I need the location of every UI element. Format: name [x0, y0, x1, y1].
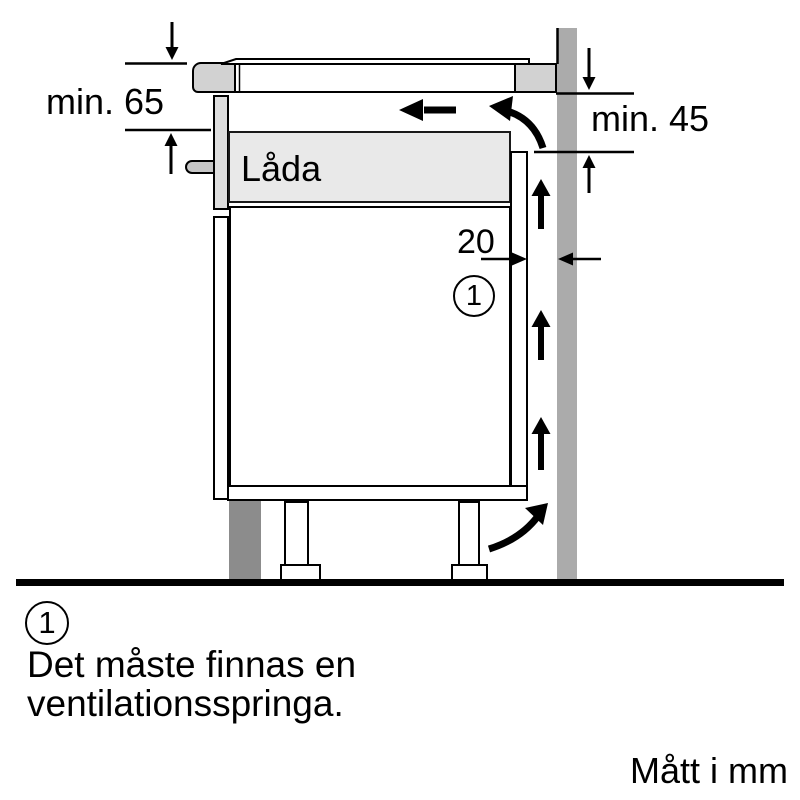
airflow-arrows-gap	[532, 179, 551, 470]
drawer-handle	[185, 160, 215, 174]
floor-line	[16, 579, 784, 586]
footnote-text-line2: ventilationsspringa.	[27, 685, 344, 722]
airflow-arrow-left	[399, 99, 456, 121]
cabinet-door-panel	[213, 216, 229, 500]
footnote-text-line1: Det måste finnas en	[27, 646, 356, 683]
cabinet-bottom-panel	[227, 485, 528, 501]
wall	[557, 28, 577, 581]
footnote-marker-badge: 1	[25, 601, 69, 645]
leg-left-shaft	[284, 501, 309, 566]
worktop-cut-section	[514, 63, 557, 93]
drawer-label: Låda	[241, 151, 321, 187]
installation-diagram: Låda min. 65 min. 45 20 1 1 Det måste fi…	[0, 0, 800, 800]
callout-1-number: 1	[466, 280, 482, 313]
dim-label-gap20: 20	[457, 225, 495, 259]
plinth	[229, 501, 261, 580]
hob-edge-profile	[192, 62, 236, 93]
units-note: Mått i mm	[630, 753, 788, 789]
airflow-arrow-bottom-curve	[489, 503, 548, 549]
callout-1-badge: 1	[453, 275, 495, 317]
leg-right-shaft	[458, 501, 480, 566]
footnote-marker-number: 1	[38, 605, 55, 641]
drawer-front-panel	[213, 95, 229, 210]
worktop	[234, 63, 557, 93]
cabinet-back-panel	[510, 151, 528, 487]
dim-label-min45: min. 45	[591, 101, 709, 137]
dim-label-min65: min. 65	[46, 84, 164, 120]
